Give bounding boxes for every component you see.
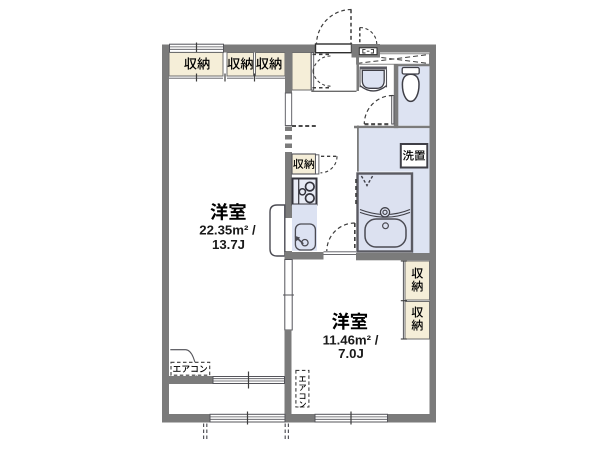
svg-text:22.35m² /: 22.35m² / (199, 222, 256, 237)
svg-text:7.0J: 7.0J (338, 346, 364, 361)
svg-text:11.46m² /: 11.46m² / (323, 332, 379, 347)
svg-text:13.7J: 13.7J (212, 237, 245, 252)
